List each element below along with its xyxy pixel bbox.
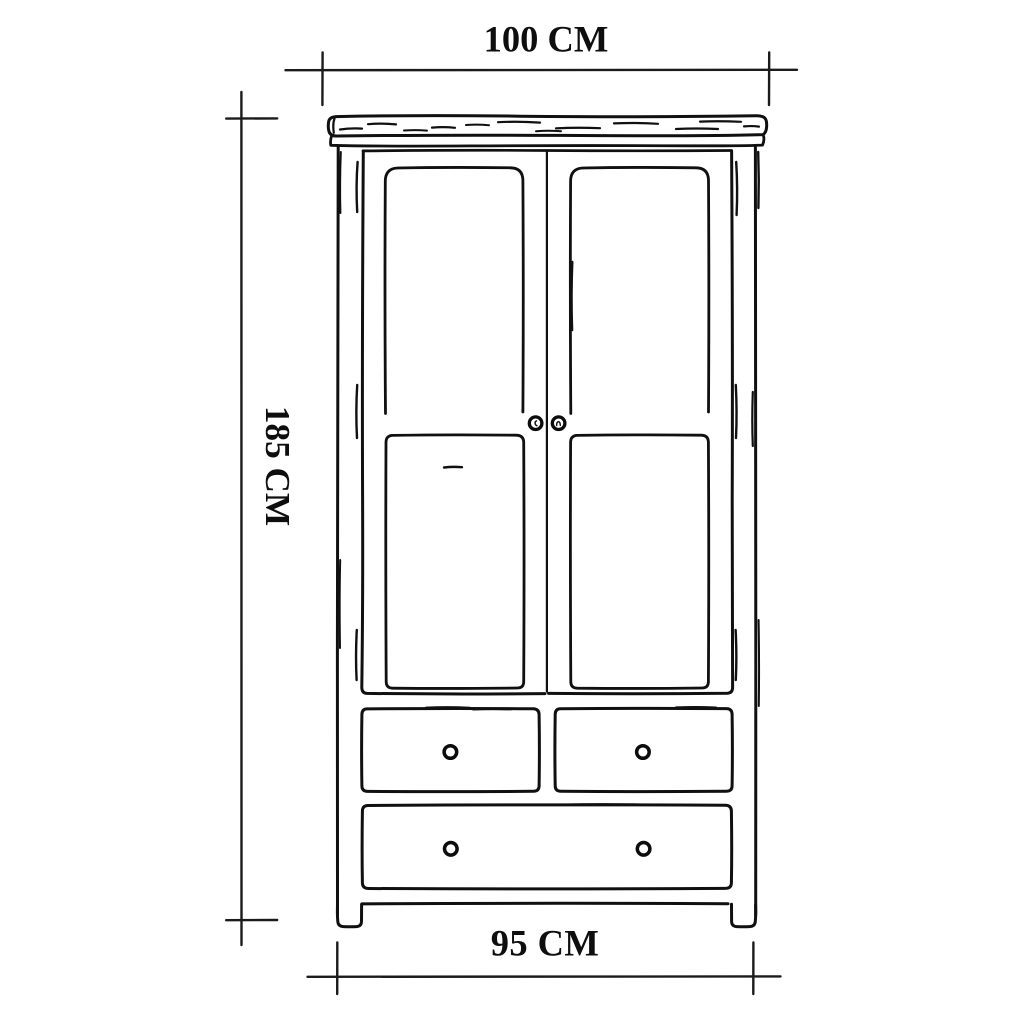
svg-text:100 CM: 100 CM (484, 19, 609, 60)
svg-text:95 CM: 95 CM (491, 923, 599, 964)
svg-text:185 CM: 185 CM (258, 406, 297, 526)
